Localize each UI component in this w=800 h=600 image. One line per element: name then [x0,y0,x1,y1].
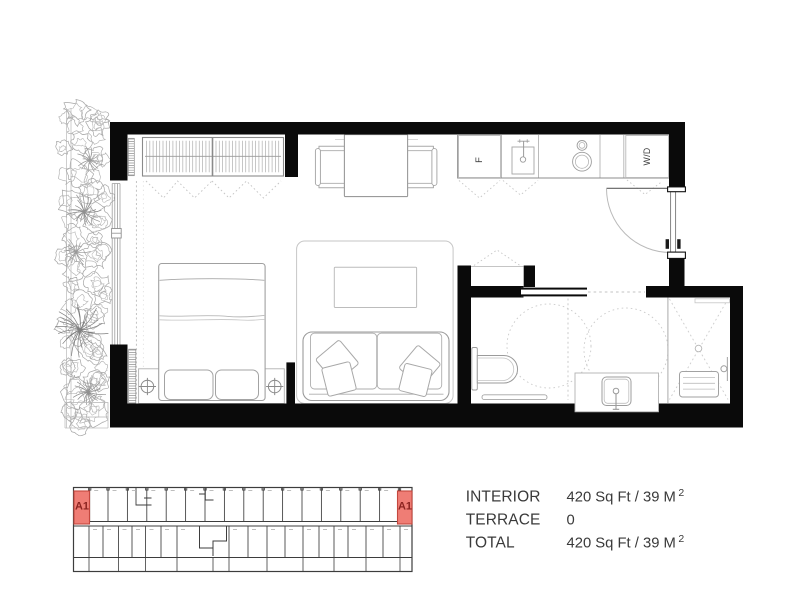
svg-text:0: 0 [567,513,575,529]
svg-text:A1: A1 [75,501,89,513]
svg-text:A1: A1 [398,501,412,513]
svg-text:W/D: W/D [642,148,652,166]
svg-text:TOTAL: TOTAL [466,535,515,552]
svg-text:F: F [474,157,485,163]
svg-text:420 Sq Ft / 39 M2: 420 Sq Ft / 39 M2 [567,533,685,552]
svg-text:420 Sq Ft / 39 M2: 420 Sq Ft / 39 M2 [567,487,685,506]
svg-text:TERRACE: TERRACE [466,512,541,529]
svg-text:INTERIOR: INTERIOR [466,489,541,506]
